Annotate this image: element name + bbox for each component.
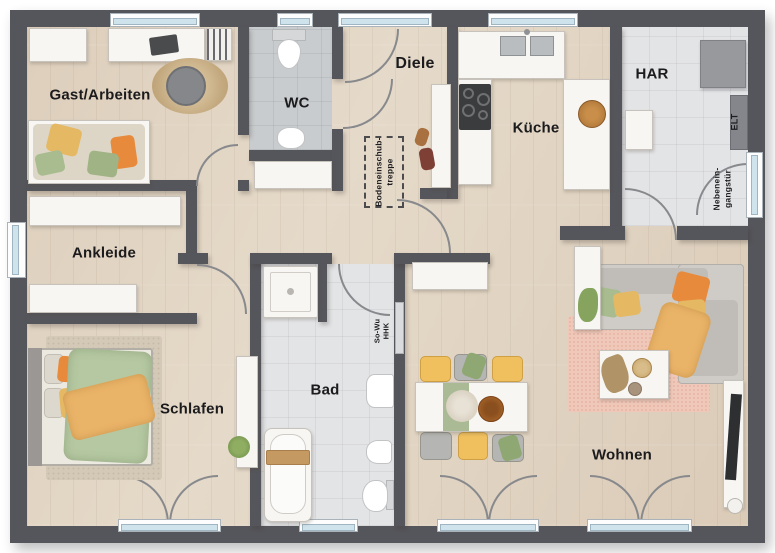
vase — [632, 358, 652, 378]
door-glass — [121, 524, 218, 531]
wall — [610, 27, 622, 226]
window-glass — [280, 18, 310, 25]
dining-chair-yellow — [492, 356, 523, 382]
side-entrance-door — [746, 152, 763, 218]
vase — [628, 382, 642, 396]
plant — [578, 288, 598, 322]
speaker — [727, 498, 743, 514]
door-glass — [341, 18, 429, 25]
burner — [478, 110, 488, 120]
cabinet — [29, 28, 87, 62]
faucet — [524, 29, 530, 35]
wall — [186, 191, 197, 258]
copper-bowl — [478, 396, 504, 422]
room-label-kueche: Küche — [513, 120, 560, 137]
room-label-bad: Bad — [311, 382, 340, 399]
washing-machine — [625, 110, 653, 150]
dining-chair-yellow — [420, 356, 451, 382]
french-door-schlafen — [118, 519, 221, 532]
washbasin — [366, 374, 394, 408]
room-label-ankleide: Ankleide — [72, 245, 136, 262]
room-label-wohnen: Wohnen — [592, 447, 652, 464]
kitchen-counter-right — [563, 79, 610, 190]
wall — [238, 27, 249, 135]
burner — [462, 104, 475, 117]
door-glass — [440, 524, 536, 531]
sink-basin — [530, 36, 554, 56]
wall — [332, 129, 343, 191]
radiator-label: So-Wu HHK — [373, 319, 392, 344]
door-glass — [751, 155, 758, 215]
room-label-schlafen: Schlafen — [160, 401, 224, 418]
bidet — [366, 440, 392, 464]
wall — [27, 313, 197, 324]
window-glass — [491, 18, 575, 25]
wall — [677, 226, 748, 240]
french-door-dining — [437, 519, 539, 532]
wall — [332, 27, 343, 79]
bathtub-basin — [270, 434, 306, 514]
floor-plan: Bodeneinschub- treppe ELT Nebenein- gang… — [0, 0, 775, 553]
toilet — [362, 480, 388, 512]
towel-radiator — [395, 302, 404, 354]
sideboard — [412, 262, 488, 290]
window-wc — [277, 13, 313, 27]
burner — [463, 88, 474, 99]
pillow-green — [86, 150, 119, 178]
utility-box — [700, 40, 746, 88]
room-label-gast: Gast/Arbeiten — [50, 87, 151, 104]
window-glass — [12, 225, 19, 275]
door-glass — [590, 524, 689, 531]
entrance-door — [338, 13, 432, 27]
sideboard — [254, 161, 332, 189]
room-label-wc: WC — [284, 95, 309, 112]
electrical-panel-label: ELT — [729, 114, 740, 131]
side-entrance-label-line2: gangstür — [722, 168, 733, 211]
wall — [394, 253, 405, 526]
side-entrance-label-line1: Nebenein- — [711, 168, 722, 211]
wall — [420, 188, 447, 199]
fruit-bowl — [578, 100, 606, 128]
wardrobe — [29, 284, 137, 313]
attic-stairs-label: Bodeneinschub- treppe — [373, 137, 394, 206]
bookshelf — [206, 28, 232, 61]
burner — [477, 93, 490, 106]
flower-centerpiece — [446, 390, 478, 422]
wardrobe — [29, 196, 181, 226]
dining-chair-gray — [420, 432, 452, 460]
pillow-yellow — [612, 290, 641, 317]
plant — [228, 436, 250, 458]
radiator-label-line1: So-Wu — [373, 319, 382, 344]
attic-stairs-label-line2: treppe — [384, 137, 395, 206]
shoe-shelf — [431, 84, 451, 188]
washbasin — [277, 127, 305, 149]
shower-partition-wall — [318, 264, 327, 322]
wall — [250, 253, 332, 264]
window-kueche — [488, 13, 578, 27]
attic-stairs-label-line1: Bodeneinschub- — [373, 137, 384, 206]
wall — [249, 150, 332, 161]
laptop — [149, 34, 179, 56]
wall — [238, 180, 249, 191]
french-door-wohnen — [587, 519, 692, 532]
side-entrance-label: Nebenein- gangstür — [711, 168, 732, 211]
window-gast — [110, 13, 200, 27]
room-label-diele: Diele — [395, 55, 434, 73]
wall — [560, 226, 625, 240]
wall — [178, 253, 208, 264]
radiator-label-line2: HHK — [382, 319, 391, 344]
dining-chair-yellow — [458, 432, 488, 460]
office-chair — [166, 66, 206, 106]
window-ankleide — [7, 222, 26, 278]
window-glass — [302, 524, 355, 531]
room-label-har: HAR — [635, 66, 668, 83]
bath-caddy — [266, 450, 310, 465]
bed-headboard — [28, 348, 42, 466]
sink-basin — [500, 36, 526, 56]
shower-drain — [287, 288, 294, 295]
window-glass — [113, 18, 197, 25]
